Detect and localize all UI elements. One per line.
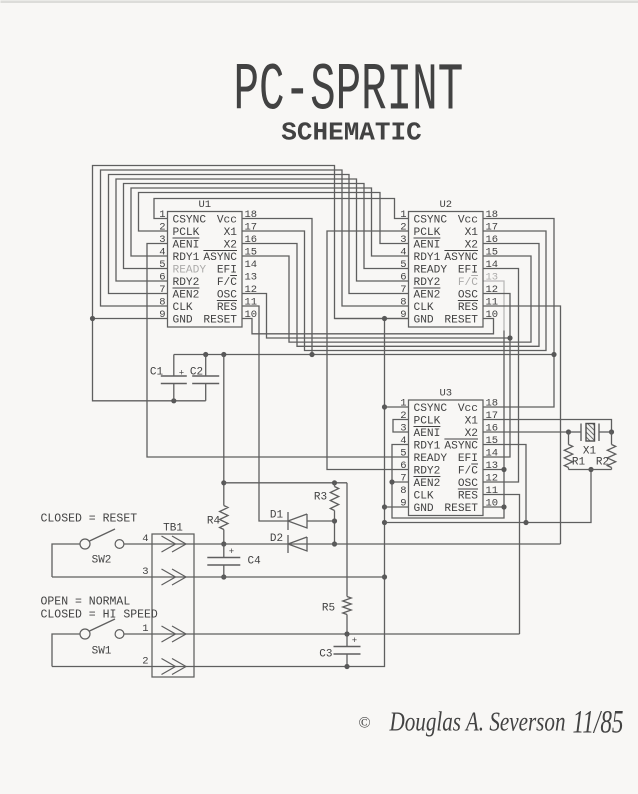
- svg-text:16: 16: [245, 234, 258, 246]
- svg-text:13: 13: [486, 272, 499, 284]
- svg-text:4: 4: [400, 247, 406, 259]
- svg-text:RES: RES: [458, 491, 478, 503]
- svg-text:1: 1: [159, 209, 165, 221]
- svg-text:12: 12: [486, 473, 499, 485]
- svg-text:ASYNC: ASYNC: [203, 252, 237, 264]
- svg-text:15: 15: [486, 435, 499, 447]
- svg-text:1: 1: [400, 398, 406, 410]
- svg-text:X2: X2: [465, 240, 478, 252]
- svg-text:D2: D2: [270, 533, 283, 545]
- svg-text:10: 10: [486, 498, 499, 510]
- svg-text:15: 15: [245, 247, 258, 259]
- svg-text:3: 3: [400, 423, 406, 435]
- svg-text:14: 14: [245, 259, 258, 271]
- svg-text:CLK: CLK: [173, 302, 193, 314]
- svg-text:8: 8: [159, 297, 165, 309]
- svg-text:RDY1: RDY1: [414, 252, 441, 264]
- svg-text:F/C: F/C: [217, 277, 237, 289]
- svg-text:EFI: EFI: [217, 265, 237, 277]
- svg-text:7: 7: [400, 473, 406, 485]
- svg-text:F/C: F/C: [458, 466, 478, 478]
- svg-text:CLK: CLK: [414, 491, 434, 503]
- svg-text:RESET: RESET: [444, 503, 478, 515]
- svg-text:D1: D1: [270, 510, 284, 522]
- svg-text:ASYNC: ASYNC: [444, 252, 478, 264]
- svg-text:9: 9: [400, 498, 406, 510]
- svg-text:11: 11: [486, 485, 499, 497]
- svg-text:AEN2: AEN2: [414, 290, 441, 302]
- svg-text:2: 2: [400, 222, 406, 234]
- svg-text:RESET: RESET: [444, 315, 478, 327]
- svg-text:ASYNC: ASYNC: [444, 441, 478, 453]
- svg-text:R2: R2: [596, 457, 609, 469]
- svg-text:©: ©: [359, 715, 371, 732]
- svg-text:1: 1: [400, 209, 406, 221]
- svg-text:SW1: SW1: [92, 646, 112, 658]
- svg-text:R5: R5: [322, 603, 335, 615]
- svg-text:+: +: [179, 369, 184, 379]
- svg-text:CSYNC: CSYNC: [414, 215, 448, 227]
- svg-text:OSC: OSC: [458, 478, 478, 490]
- svg-text:5: 5: [400, 448, 406, 460]
- svg-text:PCLK: PCLK: [414, 227, 441, 239]
- svg-text:Vcc: Vcc: [217, 215, 237, 227]
- svg-text:9: 9: [400, 309, 406, 321]
- svg-text:6: 6: [400, 460, 406, 472]
- svg-text:Douglas A. Severson: Douglas A. Severson: [389, 707, 566, 737]
- svg-text:6: 6: [159, 272, 165, 284]
- svg-text:2: 2: [159, 222, 165, 234]
- svg-text:CSYNC: CSYNC: [414, 403, 448, 415]
- svg-text:CLK: CLK: [414, 302, 434, 314]
- svg-text:12: 12: [245, 284, 258, 296]
- svg-text:CLOSED = HI SPEED: CLOSED = HI SPEED: [41, 609, 158, 622]
- svg-text:Vcc: Vcc: [458, 215, 478, 227]
- svg-text:SCHEMATIC: SCHEMATIC: [281, 118, 421, 148]
- svg-text:U2: U2: [439, 199, 452, 211]
- svg-text:11: 11: [245, 297, 258, 309]
- svg-text:PCLK: PCLK: [414, 416, 441, 428]
- svg-text:GND: GND: [414, 315, 434, 327]
- svg-text:F/C: F/C: [458, 277, 478, 289]
- svg-text:16: 16: [486, 423, 499, 435]
- svg-text:4: 4: [159, 247, 165, 259]
- svg-text:18: 18: [245, 209, 258, 221]
- svg-text:6: 6: [400, 272, 406, 284]
- svg-text:2: 2: [142, 656, 148, 668]
- svg-text:RDY2: RDY2: [414, 277, 441, 289]
- svg-text:RDY2: RDY2: [414, 466, 441, 478]
- svg-text:X1: X1: [224, 227, 238, 239]
- svg-text:17: 17: [486, 410, 499, 422]
- svg-text:GND: GND: [173, 315, 193, 327]
- svg-text:AENI: AENI: [173, 240, 200, 252]
- svg-text:13: 13: [486, 460, 499, 472]
- svg-text:READY: READY: [414, 453, 448, 465]
- svg-text:10: 10: [486, 309, 499, 321]
- svg-text:4: 4: [400, 435, 406, 447]
- svg-text:AEN2: AEN2: [414, 478, 441, 490]
- svg-text:OSC: OSC: [458, 290, 478, 302]
- svg-text:RDY1: RDY1: [173, 252, 200, 264]
- svg-text:READY: READY: [173, 265, 207, 277]
- svg-text:10: 10: [245, 309, 258, 321]
- svg-text:11/85: 11/85: [573, 705, 624, 741]
- svg-text:8: 8: [400, 485, 406, 497]
- svg-text:GND: GND: [414, 503, 434, 515]
- svg-text:C4: C4: [248, 556, 262, 568]
- svg-text:R4: R4: [207, 516, 221, 528]
- svg-text:12: 12: [486, 284, 499, 296]
- svg-text:RESET: RESET: [203, 315, 237, 327]
- svg-text:RES: RES: [217, 302, 237, 314]
- svg-text:CSYNC: CSYNC: [173, 215, 207, 227]
- svg-text:5: 5: [400, 259, 406, 271]
- svg-text:2: 2: [400, 410, 406, 422]
- svg-text:AENI: AENI: [414, 428, 441, 440]
- svg-text:EFI: EFI: [458, 265, 478, 277]
- svg-text:READY: READY: [414, 265, 448, 277]
- svg-text:R1: R1: [572, 457, 586, 469]
- svg-text:14: 14: [486, 259, 499, 271]
- svg-text:17: 17: [245, 222, 258, 234]
- svg-text:R3: R3: [314, 492, 327, 504]
- svg-text:C2: C2: [190, 367, 203, 379]
- svg-text:U1: U1: [198, 199, 211, 211]
- svg-text:CLOSED = RESET: CLOSED = RESET: [41, 513, 138, 526]
- svg-text:X2: X2: [224, 240, 237, 252]
- svg-text:14: 14: [486, 448, 499, 460]
- svg-text:RDY1: RDY1: [414, 441, 441, 453]
- svg-text:4: 4: [142, 533, 148, 545]
- svg-text:16: 16: [486, 234, 499, 246]
- svg-text:3: 3: [159, 234, 165, 246]
- svg-text:X1: X1: [465, 416, 479, 428]
- svg-text:C1: C1: [150, 367, 164, 379]
- svg-text:OSC: OSC: [217, 290, 237, 302]
- svg-text:7: 7: [159, 284, 165, 296]
- svg-text:OPEN = NORMAL: OPEN = NORMAL: [41, 596, 131, 609]
- svg-text:15: 15: [486, 247, 499, 259]
- svg-text:17: 17: [486, 222, 499, 234]
- svg-text:13: 13: [245, 272, 258, 284]
- svg-text:1: 1: [142, 623, 148, 635]
- svg-text:EFI: EFI: [458, 453, 478, 465]
- svg-text:5: 5: [159, 259, 165, 271]
- svg-text:+: +: [229, 547, 234, 557]
- svg-text:AEN2: AEN2: [173, 290, 200, 302]
- svg-text:3: 3: [142, 566, 148, 578]
- svg-text:11: 11: [486, 297, 499, 309]
- svg-text:8: 8: [400, 297, 406, 309]
- svg-text:18: 18: [486, 209, 499, 221]
- svg-text:C3: C3: [319, 649, 332, 661]
- svg-text:+: +: [352, 636, 357, 646]
- svg-text:PCLK: PCLK: [173, 227, 200, 239]
- svg-text:AENI: AENI: [414, 240, 441, 252]
- svg-text:X1: X1: [465, 227, 479, 239]
- svg-text:18: 18: [486, 398, 499, 410]
- svg-text:U3: U3: [439, 388, 452, 400]
- svg-text:3: 3: [400, 234, 406, 246]
- svg-text:RDY2: RDY2: [173, 277, 200, 289]
- svg-text:9: 9: [159, 309, 165, 321]
- svg-text:7: 7: [400, 284, 406, 296]
- svg-text:Vcc: Vcc: [458, 403, 478, 415]
- svg-text:RES: RES: [458, 302, 478, 314]
- svg-text:X2: X2: [465, 428, 478, 440]
- svg-text:SW2: SW2: [92, 555, 112, 567]
- svg-text:TB1: TB1: [163, 523, 183, 535]
